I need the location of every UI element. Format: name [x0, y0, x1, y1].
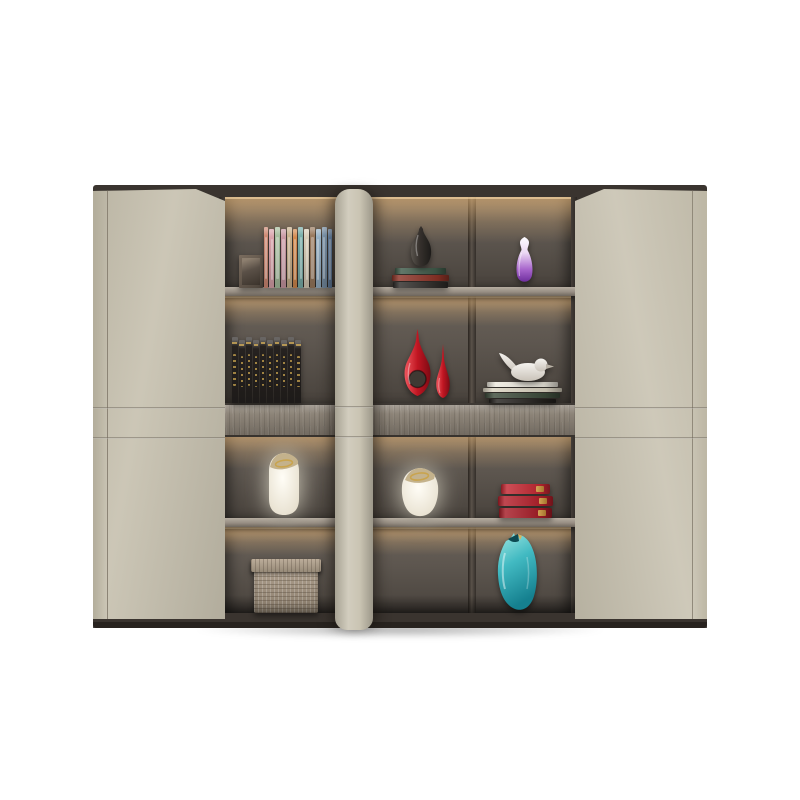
book-spine-label: [283, 356, 285, 386]
book-spine: [232, 337, 238, 403]
book-spine-label: [317, 239, 319, 280]
door-seam: [93, 437, 225, 439]
book-spine-label: [233, 354, 235, 386]
white-vase-tall: [265, 449, 303, 518]
stacked-book: [392, 275, 449, 281]
book-spine-label: [276, 237, 278, 280]
book-spine: [310, 227, 315, 288]
book-spine-label: [241, 356, 243, 386]
colorful-book-set: [263, 227, 333, 288]
book-spine: [264, 227, 269, 288]
door-seam: [93, 407, 225, 409]
book-spine-label: [294, 239, 296, 280]
shelf-board: [221, 287, 575, 296]
book-spine-label: [276, 354, 278, 386]
book-spine: [269, 229, 274, 288]
book-spine-label: [297, 356, 299, 386]
center-stile-panel: [335, 189, 373, 630]
book-spine-label: [282, 239, 284, 280]
product-image: [0, 0, 800, 800]
book-spine-label: [311, 237, 313, 280]
woven-basket-box: [254, 562, 318, 613]
book-spine: [260, 337, 266, 403]
book-spine: [281, 229, 286, 288]
book-spine: [287, 227, 292, 288]
stacked-book: [485, 393, 560, 398]
shelf-board: [221, 518, 575, 527]
stacked-book: [489, 399, 557, 404]
book-spine: [298, 227, 303, 288]
right-door-edge: [692, 186, 707, 619]
door-seam: [575, 407, 707, 409]
book-spine: [253, 340, 259, 403]
stacked-book: [483, 388, 562, 393]
book-spine-label: [288, 237, 290, 280]
left-door-edge: [93, 186, 108, 619]
book-spine: [288, 337, 294, 403]
book-spine: [295, 340, 301, 403]
stacked-book: [498, 496, 553, 506]
book-spine: [316, 229, 321, 288]
stacked-book: [393, 282, 447, 288]
book-spine: [274, 337, 280, 403]
right-door: [575, 186, 707, 619]
book-spine-label: [271, 239, 273, 280]
basket-lid: [251, 559, 321, 572]
book-spine-label: [255, 356, 257, 386]
book-spine-label: [262, 354, 264, 386]
book-spine-label: [269, 356, 271, 386]
book-spine-label: [248, 354, 250, 386]
red-vase-small: [433, 344, 453, 402]
book-spine-label: [306, 239, 308, 280]
book-spine-label: [329, 239, 331, 280]
magazine-stack: [392, 267, 449, 288]
bird-figurine: [497, 351, 555, 383]
book-spine: [281, 340, 287, 403]
book-spine: [293, 229, 298, 288]
stacked-book: [395, 268, 446, 274]
stacked-book: [499, 508, 551, 518]
door-seam: [575, 437, 707, 439]
book-spine-label: [290, 354, 292, 386]
book-spine: [267, 340, 273, 403]
dark-glass-vase: [406, 226, 436, 268]
bird-book-stack: [483, 381, 562, 403]
book-spine: [275, 227, 280, 288]
panel-seam: [335, 406, 373, 408]
book-spine: [304, 229, 309, 288]
book-spine: [328, 229, 333, 288]
black-encyclopedia-set: [231, 337, 302, 403]
red-book-stack: [498, 482, 553, 518]
book-spine: [239, 340, 245, 403]
filing-cabinet: [93, 185, 707, 628]
book-spine: [322, 227, 327, 288]
left-door: [93, 186, 225, 619]
teal-art-vase: [494, 527, 541, 612]
picture-frame: [239, 255, 263, 288]
book-spine-label: [265, 237, 267, 280]
book-spine-label: [323, 237, 325, 280]
white-vase-round: [398, 464, 442, 518]
purple-gradient-vase: [512, 237, 537, 288]
book-spine-label: [300, 237, 302, 280]
stacked-book: [501, 484, 551, 494]
panel-seam: [335, 436, 373, 438]
book-spine: [246, 337, 252, 403]
drawer-front-wood: [219, 403, 577, 437]
red-vase-large: [399, 329, 436, 402]
